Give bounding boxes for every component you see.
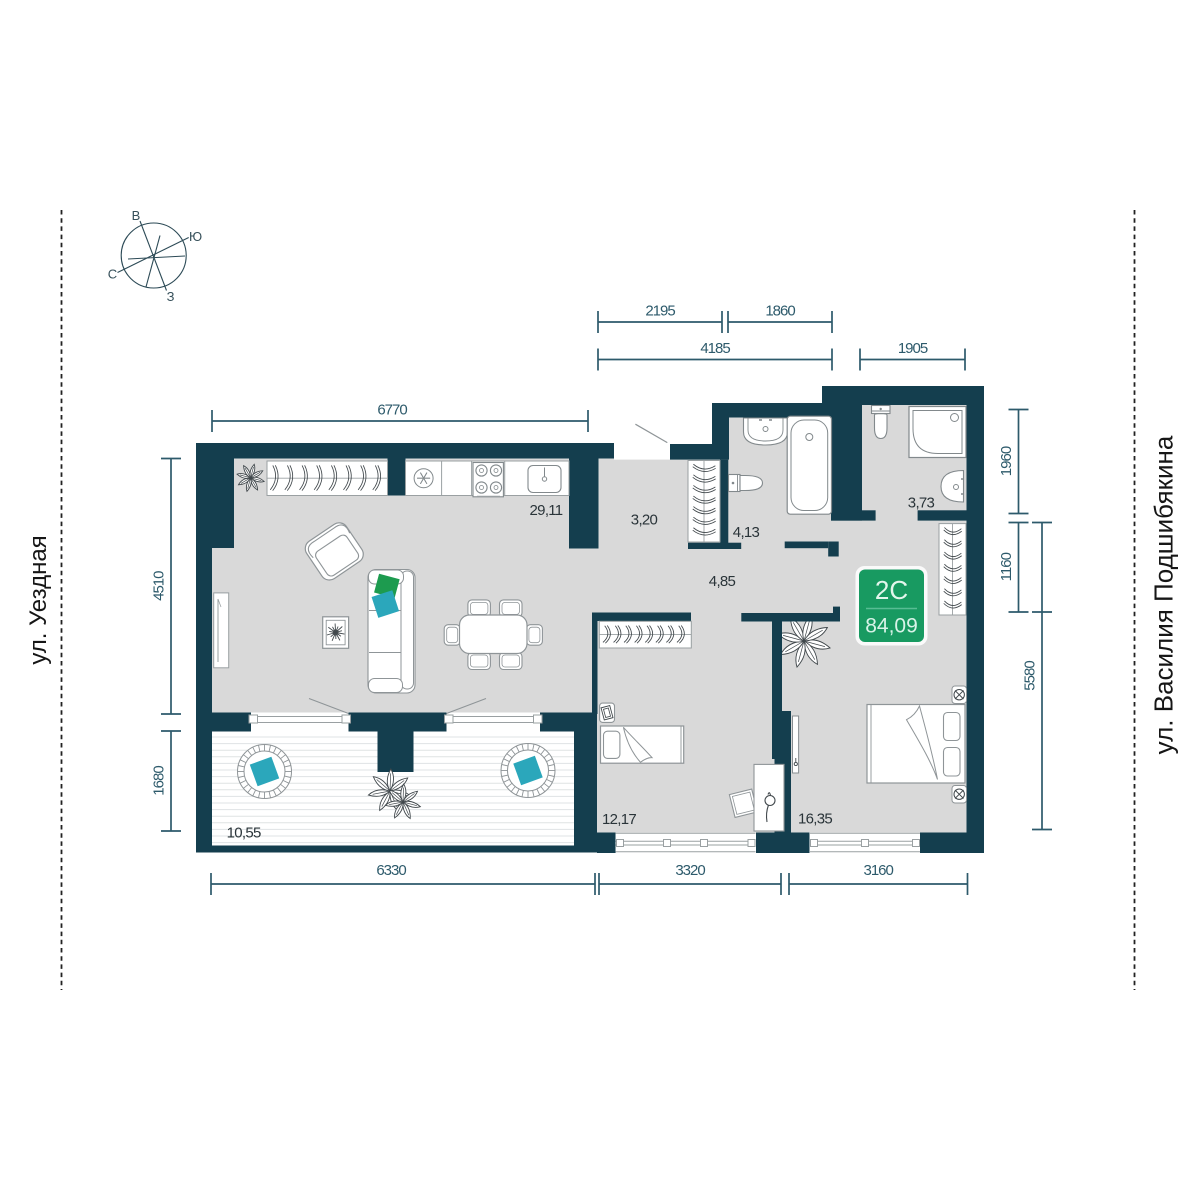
svg-text:2С: 2С bbox=[875, 575, 908, 605]
svg-text:Ю: Ю bbox=[189, 229, 202, 244]
svg-text:29,11: 29,11 bbox=[530, 502, 563, 519]
svg-text:2195: 2195 bbox=[645, 303, 675, 320]
svg-text:1960: 1960 bbox=[998, 446, 1015, 476]
svg-text:1160: 1160 bbox=[998, 552, 1015, 581]
svg-text:1860: 1860 bbox=[765, 303, 795, 320]
svg-text:4510: 4510 bbox=[151, 571, 168, 601]
svg-text:4185: 4185 bbox=[700, 340, 730, 357]
svg-text:В: В bbox=[132, 208, 141, 223]
svg-text:12,17: 12,17 bbox=[602, 811, 636, 828]
svg-text:3,73: 3,73 bbox=[908, 495, 935, 512]
svg-text:1680: 1680 bbox=[151, 766, 168, 796]
svg-text:4,85: 4,85 bbox=[709, 573, 736, 590]
svg-text:3320: 3320 bbox=[675, 862, 705, 879]
svg-text:ул. Василия Подшибякина: ул. Василия Подшибякина bbox=[1149, 435, 1179, 754]
svg-text:С: С bbox=[108, 267, 117, 282]
svg-text:ул. Уездная: ул. Уездная bbox=[25, 535, 52, 664]
svg-text:З: З bbox=[167, 289, 175, 304]
svg-text:1905: 1905 bbox=[898, 340, 928, 357]
svg-text:84,09: 84,09 bbox=[865, 615, 918, 638]
svg-text:3160: 3160 bbox=[864, 862, 894, 879]
svg-text:10,55: 10,55 bbox=[227, 825, 261, 842]
svg-text:6770: 6770 bbox=[377, 402, 407, 419]
svg-text:6330: 6330 bbox=[376, 862, 406, 879]
svg-text:4,13: 4,13 bbox=[733, 524, 760, 541]
svg-text:5580: 5580 bbox=[1022, 661, 1039, 691]
svg-text:3,20: 3,20 bbox=[631, 512, 658, 529]
svg-text:16,35: 16,35 bbox=[798, 811, 832, 828]
